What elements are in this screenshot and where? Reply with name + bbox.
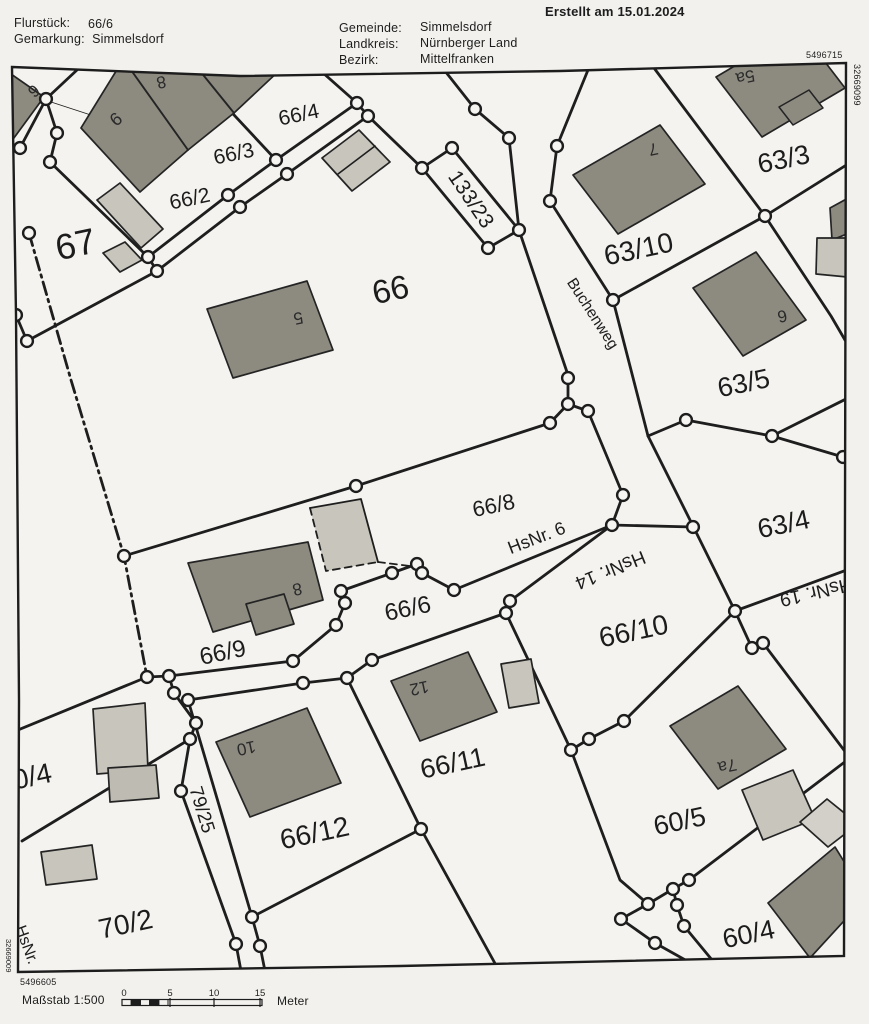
svg-text:5: 5 <box>167 988 172 999</box>
svg-text:15: 15 <box>255 988 266 999</box>
svg-text:67: 67 <box>52 220 100 268</box>
svg-text:0: 0 <box>121 988 126 999</box>
svg-text:12: 12 <box>408 677 430 700</box>
svg-text:10: 10 <box>209 988 220 999</box>
svg-text:10: 10 <box>235 737 257 760</box>
svg-text:66: 66 <box>369 267 413 311</box>
